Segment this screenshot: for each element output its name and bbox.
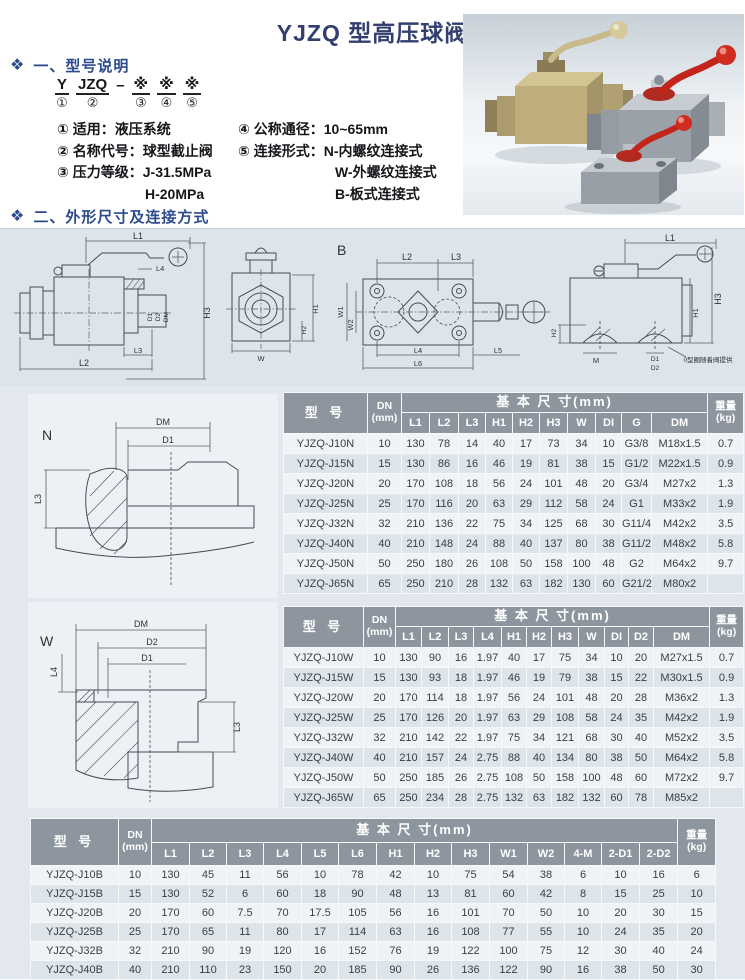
column-header: 型 号 — [284, 393, 368, 434]
side-view2-drawing: L1 H1 H3 H2 M D1 D2 0型圈随着阀提供 — [551, 233, 733, 372]
value-cell: 10 — [364, 648, 396, 668]
value-cell: 10 — [415, 866, 452, 885]
value-cell: 134 — [552, 748, 579, 768]
model-cell: YJZQ-J65N — [284, 574, 368, 594]
dim-label-l6: L6 — [414, 359, 422, 368]
value-cell: 6 — [678, 866, 716, 885]
w-detail-drawing: W DM D2 D1 L4 L3 — [28, 602, 278, 808]
value-cell: 2.75 — [474, 748, 502, 768]
value-cell: 15 — [605, 668, 629, 688]
value-cell: M22x1.5 — [652, 454, 708, 474]
dim-label-l3: L3 — [232, 722, 242, 732]
table-row: YJZQ-J25N251701162063291125824G1M33x21.9 — [284, 494, 744, 514]
value-cell: 56 — [502, 688, 527, 708]
value-cell: 6 — [565, 866, 602, 885]
section1-heading: ❖ 一、型号说明 — [10, 55, 129, 76]
value-cell: 73 — [540, 434, 568, 454]
table-row: YJZQ-J50W50250185262.75108501581004860M7… — [284, 768, 744, 788]
value-cell: 210 — [152, 961, 190, 980]
value-cell: G1 — [622, 494, 652, 514]
value-cell: 78 — [629, 788, 654, 808]
value-cell: 0.7 — [710, 648, 744, 668]
value-cell: 46 — [486, 454, 513, 474]
dim-label-d1: D1 — [141, 653, 153, 663]
value-cell: 75 — [528, 942, 565, 961]
section2-title: 二、外形尺寸及连接方式 — [33, 206, 209, 227]
model-cell: YJZQ-J65W — [284, 788, 364, 808]
value-cell: 137 — [540, 534, 568, 554]
value-cell: 19 — [415, 942, 452, 961]
value-cell: 130 — [396, 668, 422, 688]
value-cell: 182 — [552, 788, 579, 808]
value-cell: 132 — [502, 788, 527, 808]
value-cell: 60 — [605, 788, 629, 808]
value-cell: 1.9 — [708, 494, 744, 514]
value-cell: 18 — [449, 688, 474, 708]
value-cell: G3/4 — [622, 474, 652, 494]
value-cell: 180 — [430, 554, 459, 574]
column-header: H1 — [502, 627, 527, 648]
value-cell: 1.3 — [710, 688, 744, 708]
model-cell: YJZQ-J40B — [31, 961, 119, 980]
value-cell: 40 — [629, 728, 654, 748]
value-cell: 250 — [402, 574, 430, 594]
value-cell: 16 — [565, 961, 602, 980]
value-cell: 18 — [449, 668, 474, 688]
outline-drawings: L1 H3 L4 D1 D2 DM L3 L2 — [0, 229, 745, 387]
column-header: 型 号 — [284, 607, 364, 648]
column-header: H2 — [415, 843, 452, 866]
value-cell: 65 — [368, 574, 402, 594]
value-cell: 130 — [402, 454, 430, 474]
dim-label-h1: H1 — [691, 308, 700, 318]
value-cell: 10 — [602, 866, 640, 885]
column-header: L6 — [339, 843, 377, 866]
dimension-table-w: 型 号DN(mm)基 本 尺 寸(mm)重量(kg)L1L2L3L4H1H2H3… — [283, 606, 744, 808]
value-cell: 40 — [364, 748, 396, 768]
value-cell: M80x2 — [652, 574, 708, 594]
value-cell: 40 — [640, 942, 678, 961]
table-row: YJZQ-J10W1013090161.97401775341020M27x1.… — [284, 648, 744, 668]
value-cell: M33x2 — [652, 494, 708, 514]
column-header: 重量(kg) — [710, 607, 744, 648]
dim-label-l1: L1 — [133, 231, 143, 241]
value-cell: 108 — [552, 708, 579, 728]
value-cell: 15 — [602, 885, 640, 904]
value-cell: 32 — [364, 728, 396, 748]
model-code: Y ① JZQ ② – ※ ③ ※ ④ ※ ⑤ — [55, 76, 201, 111]
value-cell: 34 — [579, 648, 605, 668]
value-cell: 16 — [415, 904, 452, 923]
value-cell: 56 — [264, 866, 302, 885]
legend-line: H-20MPa — [57, 184, 213, 206]
column-header: L2 — [430, 413, 459, 434]
value-cell: 18 — [459, 474, 486, 494]
value-cell: 48 — [568, 474, 596, 494]
value-cell: 75 — [552, 648, 579, 668]
value-cell: 86 — [430, 454, 459, 474]
table-row: YJZQ-J15B1513052660189048138160428152510 — [31, 885, 716, 904]
column-header: L1 — [152, 843, 190, 866]
column-header: L2 — [422, 627, 449, 648]
value-cell: 16 — [449, 648, 474, 668]
value-cell: M27x2 — [652, 474, 708, 494]
table-row: YJZQ-J32W32210142221.977534121683040M52x… — [284, 728, 744, 748]
value-cell: 142 — [422, 728, 449, 748]
value-cell: M30x1.5 — [654, 668, 710, 688]
value-cell: 121 — [552, 728, 579, 748]
diamond-bullet-icon: ❖ — [10, 209, 24, 225]
value-cell: 93 — [422, 668, 449, 688]
model-code-star: ※ — [132, 76, 151, 95]
legend-line: ④ 公称通径：10~65mm — [238, 119, 437, 141]
value-cell: 1.97 — [474, 728, 502, 748]
value-cell: 130 — [568, 574, 596, 594]
value-cell: 210 — [152, 942, 190, 961]
value-cell: 28 — [629, 688, 654, 708]
value-cell: 105 — [339, 904, 377, 923]
dim-label-d1: D1 — [651, 356, 660, 363]
value-cell: 170 — [152, 904, 190, 923]
value-cell: 26 — [415, 961, 452, 980]
value-cell: 132 — [579, 788, 605, 808]
side-view-drawing: L1 H3 L4 D1 D2 DM L3 L2 — [14, 231, 212, 379]
column-header: H3 — [452, 843, 490, 866]
value-cell: 24 — [605, 708, 629, 728]
column-header: DI — [596, 413, 622, 434]
column-header: H1 — [377, 843, 415, 866]
value-cell: 13 — [415, 885, 452, 904]
value-cell: 20 — [459, 494, 486, 514]
model-code-star: ※ — [157, 76, 176, 95]
value-cell: 60 — [190, 904, 227, 923]
section1-title: 一、型号说明 — [33, 55, 129, 76]
w-connection-detail: W DM D2 D1 L4 L3 — [28, 602, 278, 808]
value-cell: 48 — [579, 688, 605, 708]
value-cell: G11/4 — [622, 514, 652, 534]
oring-note: 0型圈随着阀提供 — [683, 355, 733, 364]
value-cell: 7.5 — [227, 904, 264, 923]
value-cell: 14 — [459, 434, 486, 454]
value-cell: 122 — [490, 961, 528, 980]
value-cell: 55 — [528, 923, 565, 942]
value-cell: 15 — [364, 668, 396, 688]
section2-heading: ❖ 二、外形尺寸及连接方式 — [10, 206, 209, 227]
value-cell: 28 — [449, 788, 474, 808]
value-cell: 17 — [527, 648, 552, 668]
dimension-table-n: 型 号DN(mm)基 本 尺 寸(mm)重量(kg)L1L2L3H1H2H3WD… — [283, 392, 744, 594]
value-cell: 152 — [339, 942, 377, 961]
dim-label-dm: DM — [163, 312, 170, 322]
value-cell: 110 — [190, 961, 227, 980]
legend-left: ① 适用：液压系统 ② 名称代号：球型截止阀 ③ 压力等级：J-31.5MPa … — [57, 119, 213, 205]
legend-line: ③ 压力等级：J-31.5MPa — [57, 162, 213, 184]
value-cell: 1.97 — [474, 708, 502, 728]
view-label-w: W — [40, 633, 54, 649]
value-cell: 170 — [402, 474, 430, 494]
value-cell: 40 — [368, 534, 402, 554]
model-cell: YJZQ-J20B — [31, 904, 119, 923]
value-cell: 63 — [527, 788, 552, 808]
value-cell: 108 — [452, 923, 490, 942]
value-cell: 38 — [528, 866, 565, 885]
value-cell: 18 — [302, 885, 339, 904]
value-cell: 25 — [119, 923, 152, 942]
value-cell: 20 — [629, 648, 654, 668]
model-code-dash: – — [116, 76, 124, 94]
column-header: DI — [605, 627, 629, 648]
value-cell: 9.7 — [708, 554, 744, 574]
value-cell: 22 — [449, 728, 474, 748]
dim-label-dm: DM — [156, 417, 170, 427]
column-header: 基 本 尺 寸(mm) — [402, 393, 708, 413]
value-cell: 35 — [640, 923, 678, 942]
model-cell: YJZQ-J32W — [284, 728, 364, 748]
value-cell: 32 — [119, 942, 152, 961]
value-cell: 24 — [513, 474, 540, 494]
value-cell: 50 — [513, 554, 540, 574]
circled-number: ⑤ — [186, 96, 198, 110]
technical-drawing-band: L1 H3 L4 D1 D2 DM L3 L2 — [0, 228, 745, 388]
value-cell: 8 — [565, 885, 602, 904]
value-cell: 3.5 — [708, 514, 744, 534]
value-cell: 63 — [377, 923, 415, 942]
value-cell: 20 — [119, 904, 152, 923]
value-cell: 28 — [459, 574, 486, 594]
value-cell: 38 — [568, 454, 596, 474]
diamond-bullet-icon: ❖ — [10, 58, 24, 74]
value-cell: 125 — [540, 514, 568, 534]
value-cell: 108 — [486, 554, 513, 574]
value-cell: 158 — [540, 554, 568, 574]
value-cell: 10 — [119, 866, 152, 885]
model-cell: YJZQ-J50N — [284, 554, 368, 574]
value-cell: 19 — [527, 668, 552, 688]
value-cell: 10 — [678, 885, 716, 904]
value-cell: G1/2 — [622, 454, 652, 474]
dim-label-l2: L2 — [79, 358, 89, 368]
dim-label-l1: L1 — [665, 233, 675, 243]
value-cell: 90 — [528, 961, 565, 980]
value-cell: 170 — [396, 688, 422, 708]
value-cell: 20 — [605, 688, 629, 708]
value-cell: G11/2 — [622, 534, 652, 554]
value-cell: 116 — [430, 494, 459, 514]
value-cell: M64x2 — [654, 748, 710, 768]
dim-label-l4: L4 — [156, 264, 164, 273]
value-cell: M52x2 — [654, 728, 710, 748]
value-cell: 0.9 — [708, 454, 744, 474]
column-header: DM — [652, 413, 708, 434]
value-cell: 80 — [568, 534, 596, 554]
column-header: H3 — [540, 413, 568, 434]
value-cell: 16 — [640, 866, 678, 885]
model-cell: YJZQ-J15N — [284, 454, 368, 474]
value-cell: 88 — [486, 534, 513, 554]
model-code-part: ※ ⑤ — [183, 76, 202, 111]
model-cell: YJZQ-J15W — [284, 668, 364, 688]
value-cell: 1.97 — [474, 648, 502, 668]
dimension-table-b: 型 号DN(mm)基 本 尺 寸(mm)重量(kg)L1L2L3L4L5L6H1… — [30, 818, 716, 980]
value-cell: 20 — [596, 474, 622, 494]
value-cell: 15 — [596, 454, 622, 474]
model-cell: YJZQ-J50W — [284, 768, 364, 788]
view-label-b: B — [337, 242, 346, 258]
value-cell: 20 — [368, 474, 402, 494]
value-cell: 26 — [449, 768, 474, 788]
value-cell: G2 — [622, 554, 652, 574]
column-header: L3 — [459, 413, 486, 434]
value-cell: 210 — [430, 574, 459, 594]
view-label-n: N — [42, 427, 52, 443]
dim-label-l4: L4 — [414, 346, 422, 355]
value-cell: 16 — [302, 942, 339, 961]
table-row: YJZQ-J25B2517065118017114631610877551024… — [31, 923, 716, 942]
legend-line: ② 名称代号：球型截止阀 — [57, 141, 213, 163]
value-cell: 25 — [368, 494, 402, 514]
column-header: W — [579, 627, 605, 648]
value-cell: 1.97 — [474, 668, 502, 688]
value-cell: 15 — [368, 454, 402, 474]
dim-label-dm: DM — [134, 619, 148, 629]
model-cell: YJZQ-J40N — [284, 534, 368, 554]
value-cell: M42x2 — [652, 514, 708, 534]
value-cell: 30 — [605, 728, 629, 748]
value-cell: 40 — [119, 961, 152, 980]
value-cell: 48 — [605, 768, 629, 788]
value-cell: 5.8 — [710, 748, 744, 768]
model-cell: YJZQ-J32N — [284, 514, 368, 534]
value-cell: 108 — [430, 474, 459, 494]
value-cell: 20 — [449, 708, 474, 728]
table-row: YJZQ-J10B1013045115610784210755438610166 — [31, 866, 716, 885]
value-cell: 10 — [565, 923, 602, 942]
model-cell: YJZQ-J15B — [31, 885, 119, 904]
value-cell: 56 — [377, 904, 415, 923]
product-photos — [463, 14, 744, 215]
value-cell: 46 — [502, 668, 527, 688]
value-cell: 22 — [459, 514, 486, 534]
value-cell: 19 — [513, 454, 540, 474]
value-cell: 65 — [364, 788, 396, 808]
dim-label-h3: H3 — [202, 307, 212, 319]
ball-valve-photos-illustration — [463, 14, 744, 215]
value-cell: 38 — [605, 748, 629, 768]
value-cell: 40 — [502, 648, 527, 668]
value-cell: 34 — [513, 514, 540, 534]
value-cell: 80 — [264, 923, 302, 942]
column-header: H3 — [552, 627, 579, 648]
dim-label-l3: L3 — [33, 494, 43, 504]
value-cell: 42 — [528, 885, 565, 904]
model-cell: YJZQ-J25N — [284, 494, 368, 514]
value-cell: 63 — [502, 708, 527, 728]
value-cell: 130 — [402, 434, 430, 454]
value-cell: 10 — [368, 434, 402, 454]
dim-label-l3: L3 — [451, 252, 461, 262]
value-cell: M36x2 — [654, 688, 710, 708]
value-cell: 63 — [513, 574, 540, 594]
value-cell: M72x2 — [654, 768, 710, 788]
value-cell: 23 — [227, 961, 264, 980]
column-header: DN(mm) — [368, 393, 402, 434]
model-code-char: JZQ — [76, 76, 109, 95]
circled-number: ② — [87, 96, 99, 110]
model-cell: YJZQ-J32B — [31, 942, 119, 961]
column-header: 4-M — [565, 843, 602, 866]
value-cell: 101 — [552, 688, 579, 708]
value-cell: 22 — [629, 668, 654, 688]
value-cell: 81 — [452, 885, 490, 904]
value-cell: 2.75 — [474, 788, 502, 808]
legend-line: ⑤ 连接形式：N-内螺纹连接式 — [238, 141, 437, 163]
model-cell: YJZQ-J20N — [284, 474, 368, 494]
column-header: L2 — [190, 843, 227, 866]
value-cell: 157 — [422, 748, 449, 768]
value-cell — [710, 788, 744, 808]
value-cell: 210 — [396, 748, 422, 768]
value-cell: 48 — [596, 554, 622, 574]
value-cell: 29 — [513, 494, 540, 514]
value-cell: 24 — [449, 748, 474, 768]
value-cell: 210 — [396, 728, 422, 748]
model-cell: YJZQ-J20W — [284, 688, 364, 708]
value-cell: 81 — [540, 454, 568, 474]
value-cell: 75 — [486, 514, 513, 534]
value-cell: 38 — [579, 668, 605, 688]
value-cell: 170 — [396, 708, 422, 728]
plate-view-drawing: B L2 L3 W1 — [336, 242, 552, 370]
value-cell: 40 — [527, 748, 552, 768]
value-cell: G3/8 — [622, 434, 652, 454]
dim-label-h2: H2 — [301, 325, 308, 334]
value-cell: 70 — [490, 904, 528, 923]
column-header: H1 — [486, 413, 513, 434]
value-cell: 25 — [364, 708, 396, 728]
value-cell: 65 — [190, 923, 227, 942]
legend-line: ① 适用：液压系统 — [57, 119, 213, 141]
value-cell: 250 — [396, 788, 422, 808]
value-cell: 1.97 — [474, 688, 502, 708]
value-cell: 10 — [596, 434, 622, 454]
table-row: YJZQ-J32N322101362275341256830G11/4M42x2… — [284, 514, 744, 534]
value-cell: 68 — [579, 728, 605, 748]
value-cell: 20 — [302, 961, 339, 980]
dim-label-d1: D1 — [147, 312, 154, 321]
value-cell: 0.7 — [708, 434, 744, 454]
circled-number: ④ — [161, 96, 173, 110]
value-cell: 80 — [579, 748, 605, 768]
model-cell: YJZQ-J40W — [284, 748, 364, 768]
model-cell: YJZQ-J10N — [284, 434, 368, 454]
value-cell: 75 — [502, 728, 527, 748]
column-header: 基 本 尺 寸(mm) — [152, 819, 678, 843]
value-cell: 90 — [339, 885, 377, 904]
column-header: DN(mm) — [364, 607, 396, 648]
value-cell: 182 — [540, 574, 568, 594]
table-row: YJZQ-J15W1513093181.97461979381522M30x1.… — [284, 668, 744, 688]
value-cell: 24 — [596, 494, 622, 514]
value-cell: 24 — [527, 688, 552, 708]
value-cell: 38 — [596, 534, 622, 554]
column-header: W — [568, 413, 596, 434]
value-cell: 19 — [227, 942, 264, 961]
value-cell: 150 — [264, 961, 302, 980]
value-cell: 15 — [119, 885, 152, 904]
value-cell: 30 — [602, 942, 640, 961]
value-cell: 234 — [422, 788, 449, 808]
value-cell: 12 — [565, 942, 602, 961]
